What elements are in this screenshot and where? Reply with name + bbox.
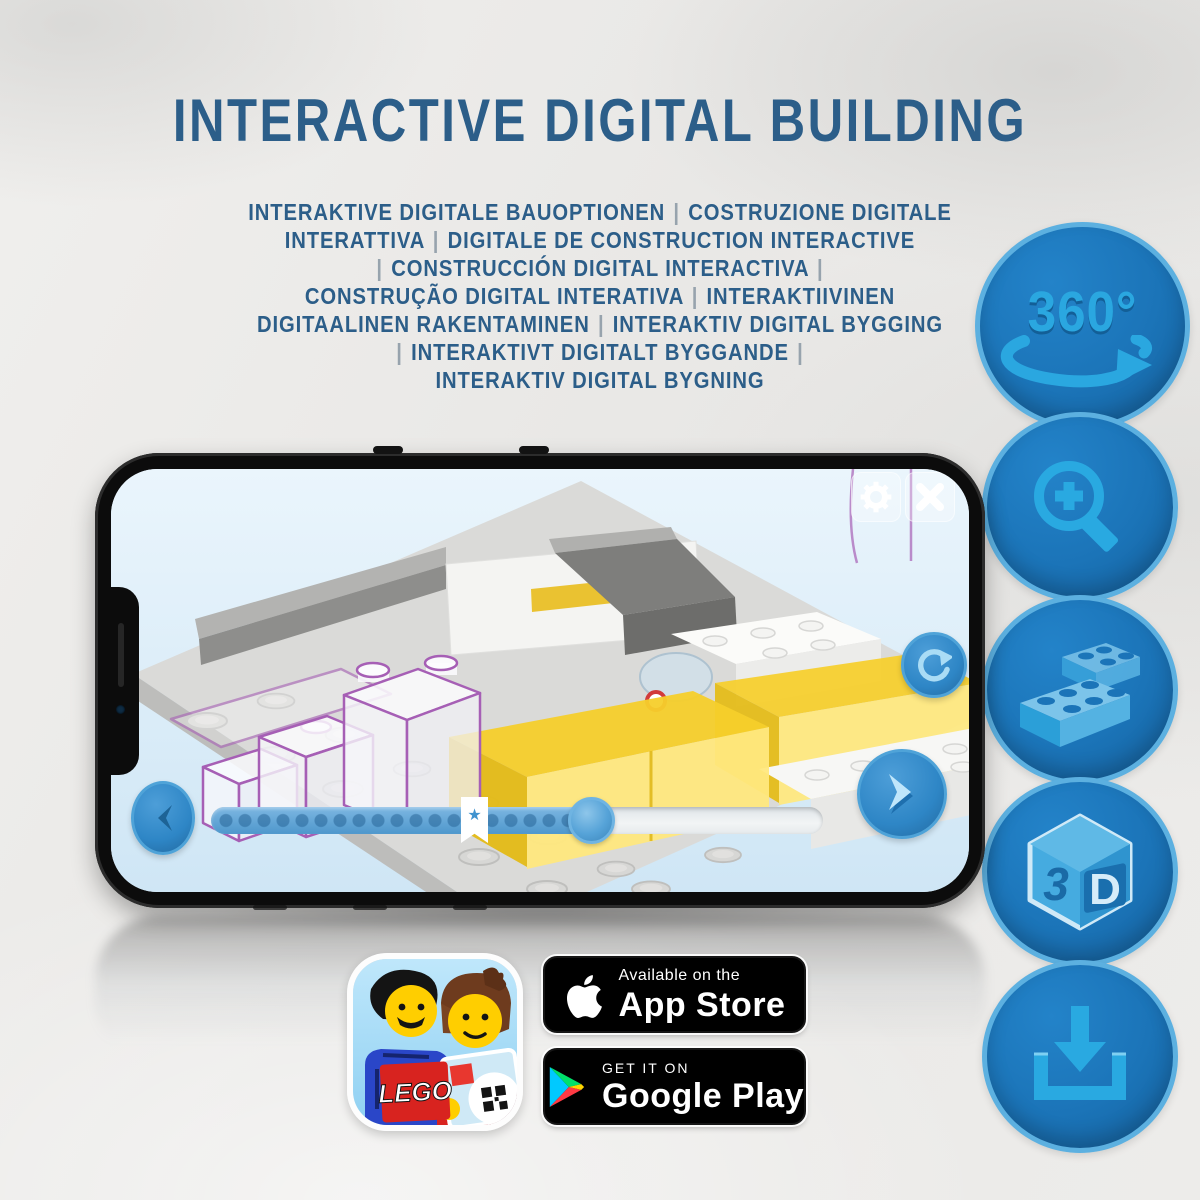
apple-logo-icon	[564, 971, 604, 1019]
lego-logo: LEGO	[377, 1075, 452, 1109]
lego-app-icon-art: LEGO	[353, 959, 517, 1125]
3d-label-d: D	[1089, 865, 1121, 914]
poster: INTERACTIVE DIGITAL BUILDING INTERAKTIVE…	[0, 0, 1200, 1200]
subtitle-line: CONSTRUÇÃO DIGITAL INTERATIVA | INTERAKT…	[72, 282, 1128, 310]
subtitle-line: INTERATTIVA | DIGITALE DE CONSTRUCTION I…	[72, 226, 1128, 254]
progress-fill	[211, 807, 591, 834]
subtitle-line: INTERAKTIV DIGITAL BYGNING	[72, 366, 1128, 394]
feature-badge-3d: 3 D	[982, 777, 1178, 967]
phone-notch	[111, 587, 139, 775]
phone-port	[253, 905, 287, 910]
3d-cube-icon: 3 D	[1016, 808, 1144, 936]
app-store-name: App Store	[619, 988, 786, 1022]
front-camera	[116, 705, 125, 714]
phone-mockup: ★	[95, 453, 985, 908]
close-icon	[915, 482, 945, 512]
previous-step-icon	[152, 803, 174, 833]
google-play-tagline: GET IT ON	[602, 1061, 804, 1075]
feature-badge-zoom	[982, 412, 1178, 602]
subtitle-line: | INTERAKTIVT DIGITALT BYGGANDE |	[72, 338, 1128, 366]
google-play-icon	[545, 1063, 587, 1111]
speaker-grille	[118, 623, 124, 687]
feature-badge-download	[982, 960, 1178, 1153]
3d-label-3: 3	[1043, 858, 1069, 910]
next-step-button[interactable]	[857, 749, 947, 839]
rotate-model-icon	[916, 647, 952, 683]
phone-port	[453, 905, 487, 910]
settings-gear-icon	[859, 480, 893, 514]
lego-brick-icon	[1014, 631, 1146, 749]
app-store-tagline: Available on the	[619, 968, 786, 984]
subtitle-line: DIGITAALINEN RAKENTAMINEN | INTERAKTIV D…	[72, 310, 1128, 338]
settings-button[interactable]	[851, 472, 901, 522]
phone-reflection	[95, 916, 985, 1066]
phone-side-button	[373, 446, 403, 454]
page-title: INTERACTIVE DIGITAL BUILDING	[108, 86, 1092, 155]
google-play-badge[interactable]: GET IT ON Google Play	[543, 1048, 806, 1125]
360-rotation-icon	[994, 335, 1162, 403]
feature-badge-360: 360°	[975, 222, 1190, 430]
feature-badge-bricks	[982, 595, 1178, 785]
next-step-icon	[885, 772, 919, 816]
bookmark-star-icon: ★	[467, 805, 481, 825]
close-button[interactable]	[905, 472, 955, 522]
step-dots	[217, 807, 579, 834]
lego-app-icon[interactable]: LEGO	[347, 953, 523, 1131]
google-play-name: Google Play	[602, 1079, 804, 1113]
app-store-badge[interactable]: Available on the App Store	[543, 956, 806, 1033]
zoom-in-icon	[1025, 452, 1135, 562]
phone-side-button	[519, 446, 549, 454]
build-progress-slider[interactable]: ★	[211, 807, 823, 834]
slider-handle[interactable]	[568, 797, 615, 844]
download-icon	[1022, 1002, 1138, 1112]
previous-step-button[interactable]	[131, 781, 195, 855]
subtitle-line: | CONSTRUCCIÓN DIGITAL INTERACTIVA |	[72, 254, 1128, 282]
subtitle-line: INTERAKTIVE DIGITALE BAUOPTIONEN | COSTR…	[72, 198, 1128, 226]
app-screen: ★	[111, 469, 969, 892]
phone-port	[353, 905, 387, 910]
rotate-model-button[interactable]	[901, 632, 967, 698]
